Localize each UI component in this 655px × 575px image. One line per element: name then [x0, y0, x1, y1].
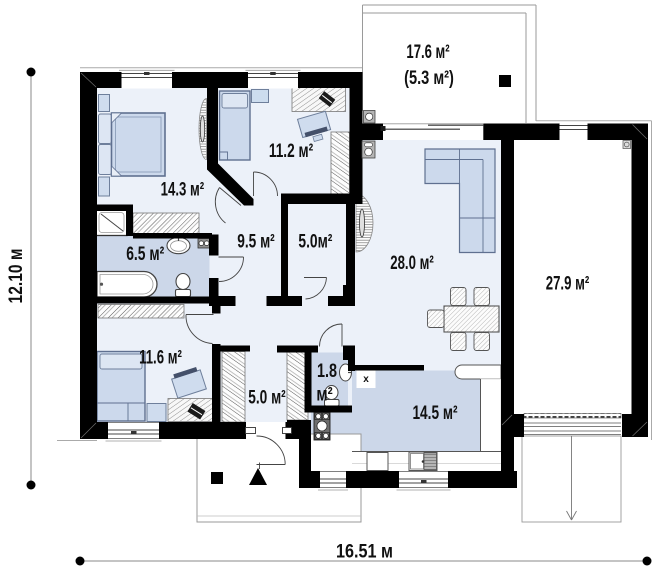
svg-text:16.51 м: 16.51 м	[336, 540, 393, 562]
svg-text:5.0 м²: 5.0 м²	[248, 386, 286, 408]
svg-text:1.8: 1.8	[317, 360, 337, 381]
svg-text:17.6 м²: 17.6 м²	[406, 42, 450, 63]
svg-text:14.5 м²: 14.5 м²	[412, 402, 457, 424]
svg-text:27.9 м²: 27.9 м²	[546, 273, 590, 294]
svg-text:9.5 м²: 9.5 м²	[237, 230, 275, 252]
svg-text:м²: м²	[316, 383, 333, 405]
svg-text:12.10 м: 12.10 м	[5, 249, 27, 304]
svg-text:x: x	[363, 374, 369, 385]
svg-text:5.0м²: 5.0м²	[298, 230, 332, 252]
svg-text:(5.3 м²): (5.3 м²)	[404, 67, 454, 88]
svg-text:14.3 м²: 14.3 м²	[161, 179, 205, 200]
svg-text:28.0 м²: 28.0 м²	[390, 253, 434, 274]
svg-text:11.6 м²: 11.6 м²	[139, 347, 182, 368]
svg-text:11.2 м²: 11.2 м²	[269, 140, 314, 162]
svg-text:6.5 м²: 6.5 м²	[126, 243, 164, 265]
